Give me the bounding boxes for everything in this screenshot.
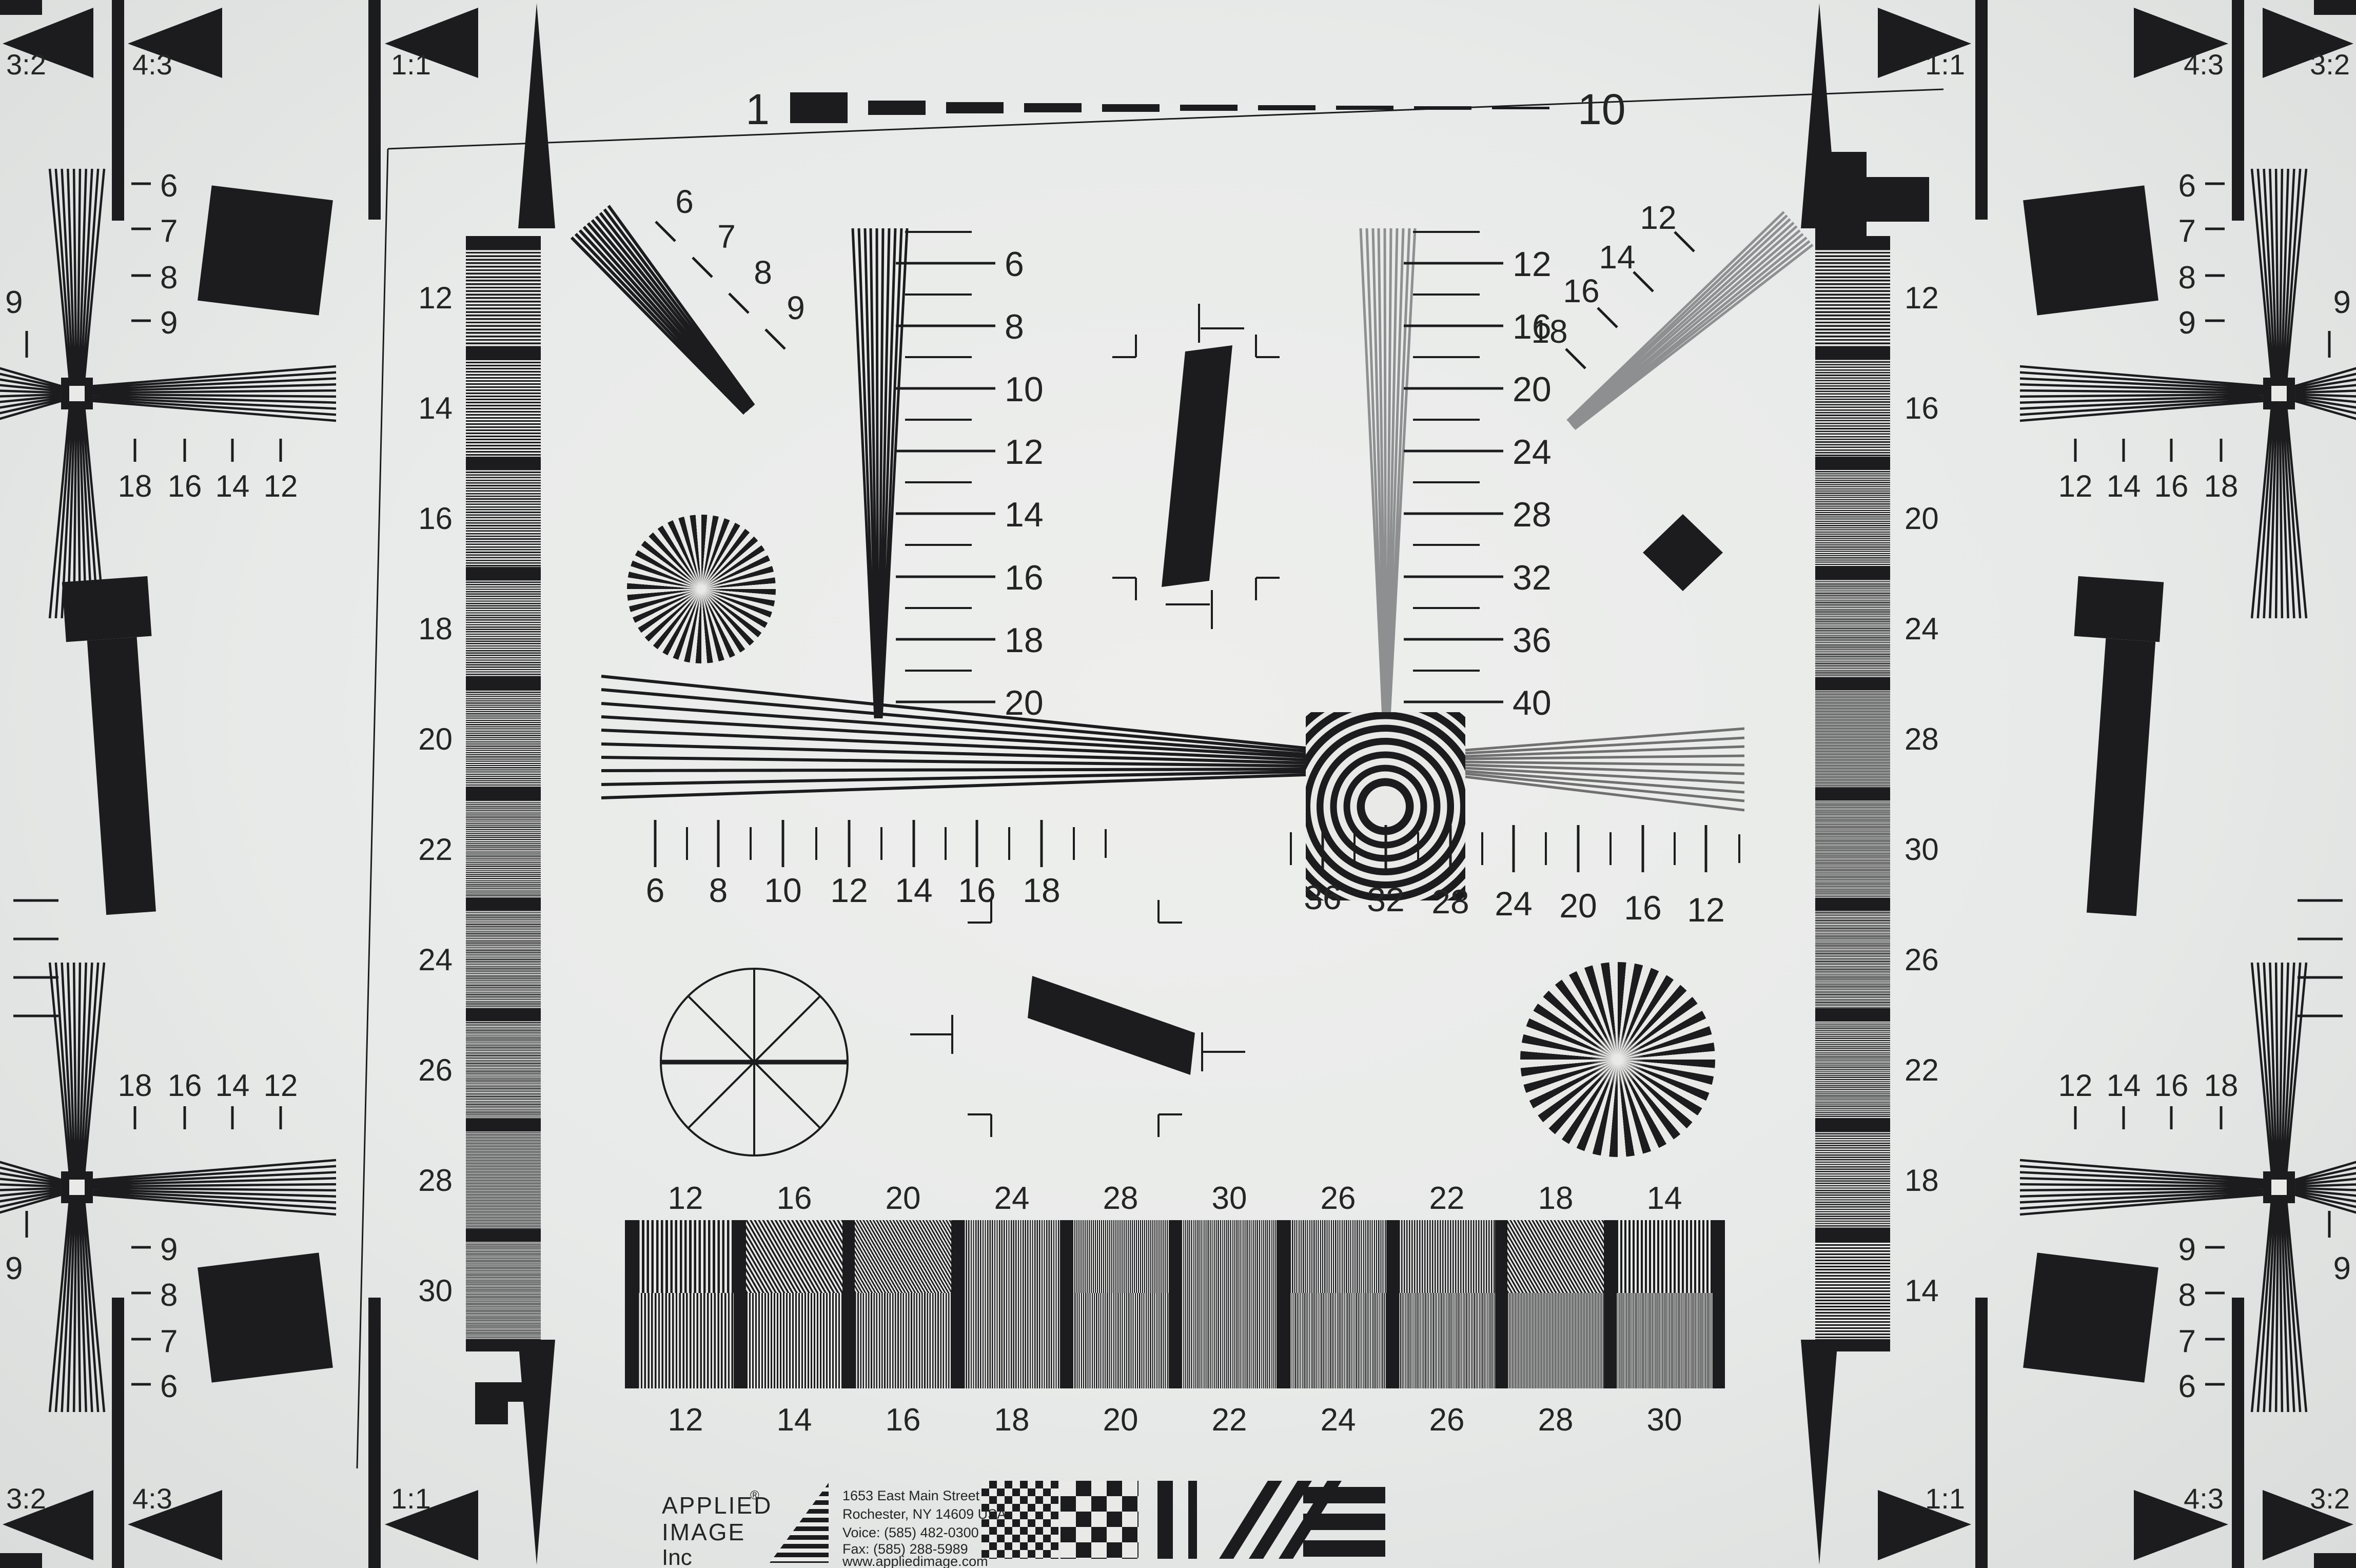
corner-scale-label: 12	[2058, 469, 2093, 503]
black-diamond	[1643, 514, 1723, 591]
tablet-label: 18	[1538, 1181, 1574, 1216]
resolution-test-chart: 1 10 3:2 4:3 1:1 3:2 4:3	[0, 0, 2356, 1568]
strip-label: 22	[1905, 1053, 1939, 1087]
wedge-b-label: 40	[1513, 683, 1552, 722]
strip-label: 12	[418, 281, 453, 315]
strip-label: 12	[1905, 281, 1939, 315]
hwedge-label: 36	[1304, 878, 1341, 916]
corner-scale-label: 16	[168, 1068, 202, 1103]
diag-scale-label: 12	[1640, 199, 1676, 236]
corner-scale-label: 14	[2107, 469, 2141, 503]
aspect-label: 3:2	[6, 48, 46, 81]
hwedge-label: 12	[1687, 891, 1724, 929]
tablet-label: 20	[886, 1181, 921, 1216]
strip-label: 20	[418, 722, 453, 756]
wedge-b-label: 20	[1513, 370, 1552, 409]
corner-scale-label: 7	[2178, 1324, 2196, 1359]
corner-scale-label: 18	[2204, 469, 2239, 503]
tablet-label: 14	[1647, 1181, 1682, 1216]
hwedge-label: 20	[1559, 887, 1597, 925]
strip-label: 24	[1905, 612, 1939, 646]
corner-scale-label: 6	[2178, 1369, 2196, 1404]
tablet-label: 22	[1429, 1181, 1465, 1216]
strip-right-labels: 12 16 20 24 28 30 26 22 18 14	[1905, 281, 1939, 1308]
wedge-b-label: 12	[1513, 245, 1552, 284]
corner-scale-label: 18	[118, 1068, 152, 1103]
edge-dashes-right	[2298, 900, 2343, 1016]
tablet-label: 12	[668, 1181, 703, 1216]
corner-scale-label: 12	[264, 1068, 298, 1103]
aspect-label: 1:1	[1925, 48, 1965, 81]
corner-scale-label: 16	[2154, 469, 2189, 503]
corner-scale-label: 8	[2178, 1278, 2196, 1313]
tilted-bar-horizontal	[910, 900, 1245, 1137]
hwedge-label: 14	[895, 871, 932, 909]
tablet-label: 26	[1429, 1402, 1465, 1438]
corner-scale-label: 7	[160, 1324, 178, 1359]
tablet-top-labels: 12 16 20 24 28 30 26 22 18 14	[668, 1181, 1682, 1216]
wedge-a-label: 6	[1005, 245, 1024, 284]
strip-label: 14	[418, 391, 453, 425]
logo-block: APPLIED IMAGE Inc ® 1653 East Main Stree…	[662, 1488, 1006, 1568]
wedge-a-label: 8	[1005, 307, 1024, 346]
strip-left-bars	[466, 236, 541, 1351]
logo-brand-line: IMAGE	[662, 1519, 745, 1545]
corner-scale-label: 12	[2058, 1068, 2093, 1103]
aspect-label: 4:3	[2184, 1482, 2224, 1515]
tablet-label: 20	[1103, 1402, 1138, 1438]
ruler-label-1: 1	[745, 85, 770, 133]
wedge-a-label: 10	[1005, 370, 1044, 409]
diagonal-wedge-right: 18 16 14 12	[1531, 199, 1813, 429]
wedge-b-label: 36	[1513, 621, 1552, 660]
tablet-label: 24	[1321, 1402, 1356, 1438]
hwedge-label: 24	[1495, 885, 1532, 923]
wedge-a-label: 18	[1005, 621, 1044, 660]
diag-scale-label: 16	[1563, 272, 1599, 309]
edge-digit: 9	[5, 285, 23, 320]
edge-digit: 9	[2333, 1251, 2351, 1286]
strip-label: 18	[418, 612, 453, 646]
strip-right-flag	[1815, 152, 1929, 236]
logo-brand-line: Inc	[662, 1545, 692, 1568]
tablet-bars	[625, 1220, 1725, 1388]
hwedge-label: 32	[1367, 880, 1404, 918]
wedge-b-label: 32	[1513, 558, 1552, 597]
wedge-a-label: 12	[1005, 433, 1044, 472]
aspect-label: 4:3	[2184, 48, 2224, 81]
logo-address: 1653 East Main Street	[842, 1488, 980, 1503]
corner-scale-label: 14	[2107, 1068, 2141, 1103]
tablet-label: 24	[994, 1181, 1030, 1216]
hwedge-label: 12	[830, 871, 868, 909]
strip-label: 30	[418, 1273, 453, 1308]
corner-scale-label: 14	[215, 469, 250, 503]
strip-label: 20	[1905, 501, 1939, 536]
tablet-label: 14	[777, 1402, 812, 1438]
strip-label: 28	[418, 1163, 453, 1198]
registered-mark: ®	[750, 1488, 759, 1502]
tablet-label: 22	[1212, 1402, 1247, 1438]
hwedge-label: 8	[709, 871, 728, 909]
black-square	[2023, 185, 2158, 315]
diagonal-wedge-left: 6 7 8 9	[572, 183, 805, 414]
tablet-bottom-labels: 12 14 16 18 20 22 24 26 28 30	[668, 1402, 1682, 1438]
vertical-wedge-b: 12 16 20 24 28 32 36 40	[1361, 228, 1552, 722]
corner-scale-label: 6	[160, 168, 178, 204]
hwedge-label: 28	[1431, 883, 1469, 920]
corner-scale-label: 8	[2178, 260, 2196, 296]
hwedge-label: 6	[646, 871, 665, 909]
strip-label: 24	[418, 943, 453, 977]
tablet-label: 30	[1647, 1402, 1682, 1438]
tablet-label: 26	[1321, 1181, 1356, 1216]
aspect-label: 4:3	[132, 48, 172, 81]
tablet-label: 30	[1212, 1181, 1247, 1216]
corner-scale-label: 7	[160, 213, 178, 249]
aspect-label: 3:2	[6, 1482, 46, 1515]
tablet-label: 12	[668, 1402, 703, 1438]
bottom-bar-patterns	[1157, 1481, 1385, 1559]
diag-scale-label: 14	[1599, 239, 1635, 276]
strip-right-bars	[1815, 236, 1890, 1351]
black-square	[2023, 1252, 2158, 1382]
wedge-b-label: 16	[1513, 307, 1552, 346]
corner-scale-label: 8	[160, 260, 178, 296]
strip-label: 18	[1905, 1163, 1939, 1198]
segmented-circle	[661, 969, 848, 1155]
diag-scale-label: 9	[787, 289, 805, 326]
aspect-label: 3:2	[2310, 1482, 2350, 1515]
black-square	[198, 1252, 333, 1382]
center-mark-triangle	[518, 3, 555, 228]
center-mark-triangle	[1801, 1340, 1838, 1565]
diag-scale-label: 8	[754, 254, 772, 291]
tablet-label: 28	[1103, 1181, 1138, 1216]
top-ruler: 1 10	[745, 85, 1625, 133]
chart-linework: 1 10 3:2 4:3 1:1 3:2 4:3	[0, 0, 2356, 1568]
t-shape-right	[2055, 576, 2164, 916]
aspect-label: 3:2	[2310, 48, 2350, 81]
corner-scale-label: 9	[2178, 1232, 2196, 1267]
edge-dashes-left	[13, 900, 58, 1016]
strip-label: 26	[1905, 943, 1939, 977]
corner-scale-label: 14	[215, 1068, 250, 1103]
diag-scale-label: 7	[717, 218, 736, 255]
logo-address: Rochester, NY 14609 USA	[842, 1506, 1006, 1522]
edge-digit: 9	[2333, 285, 2351, 320]
wedge-a-label: 14	[1005, 495, 1044, 534]
corner-scale-label: 9	[160, 1232, 178, 1267]
corner-scale-label: 6	[2178, 168, 2196, 204]
corner-scale-label: 9	[2178, 305, 2196, 341]
corner-scale-label: 7	[2178, 213, 2196, 249]
aspect-label: 4:3	[132, 1482, 172, 1515]
hwedge-label: 10	[764, 871, 801, 909]
tablet-label: 28	[1538, 1402, 1574, 1438]
corner-scale-label: 8	[160, 1278, 178, 1313]
vertical-wedge-a: 6 8 10 12 14 16 18 20	[853, 228, 1044, 722]
strip-label: 30	[1905, 832, 1939, 867]
corner-scale-label: 18	[118, 469, 152, 503]
diag-scale-label: 6	[675, 183, 694, 220]
strip-label: 14	[1905, 1273, 1939, 1308]
edge-digit: 9	[5, 1251, 23, 1286]
strip-label: 16	[1905, 391, 1939, 425]
black-square	[198, 185, 333, 315]
tablet-label: 18	[994, 1402, 1030, 1438]
hwedge-label: 16	[958, 871, 995, 909]
aspect-label: 1:1	[391, 1482, 431, 1515]
wedge-a-label: 16	[1005, 558, 1044, 597]
corner-scale-label: 9	[160, 305, 178, 341]
wedge-b-label: 24	[1513, 433, 1552, 472]
aspect-label: 1:1	[1925, 1482, 1965, 1515]
hwedge-label: 16	[1624, 889, 1661, 927]
strip-label: 28	[1905, 722, 1939, 756]
logo-phone: Voice: (585) 482-0300	[842, 1525, 979, 1540]
t-shape-left	[62, 576, 171, 916]
corner-scale-label: 6	[160, 1369, 178, 1404]
corner-scale-label: 16	[2154, 1068, 2189, 1103]
horizontal-wedge-left: 6 8 10 12 14 16 18	[601, 676, 1306, 909]
tilted-bar-vertical	[1112, 304, 1280, 629]
corner-scale-label: 18	[2204, 1068, 2239, 1103]
strip-label: 26	[418, 1053, 453, 1087]
strip-left-labels: 12 14 16 18 20 22 24 26 28 30	[418, 281, 453, 1308]
strip-label: 22	[418, 832, 453, 867]
ruler-label-10: 10	[1578, 85, 1625, 133]
strip-label: 16	[418, 501, 453, 536]
tablet-label: 16	[777, 1181, 812, 1216]
hwedge-label: 18	[1023, 871, 1060, 909]
logo-website: www.appliedimage.com	[842, 1554, 988, 1568]
tablet-label: 16	[886, 1402, 921, 1438]
wedge-b-label: 28	[1513, 495, 1552, 534]
aspect-label: 1:1	[391, 48, 431, 81]
corner-scale-label: 12	[264, 469, 298, 503]
corner-scale-label: 16	[168, 469, 202, 503]
center-mark-triangle	[518, 1340, 555, 1565]
